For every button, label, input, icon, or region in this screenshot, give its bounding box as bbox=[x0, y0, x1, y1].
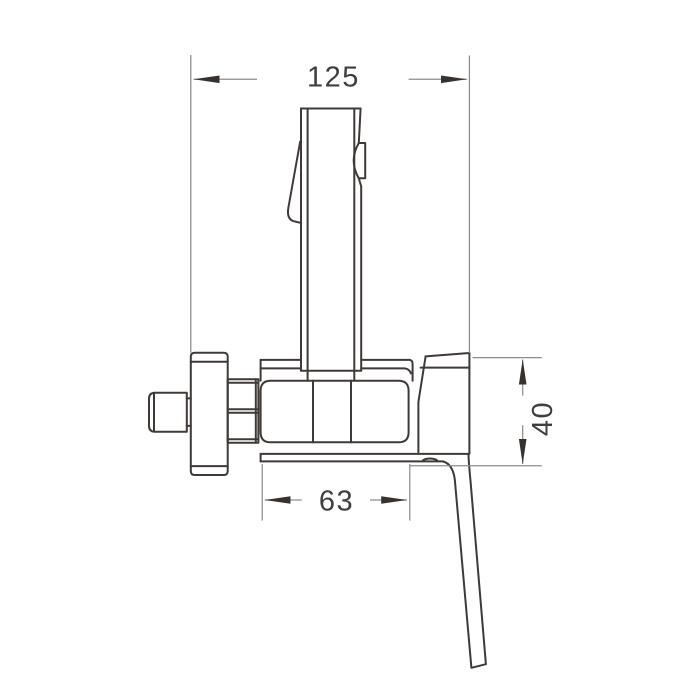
valve-body bbox=[261, 360, 469, 462]
wand-outer-right-upper-edge bbox=[359, 109, 361, 144]
arrowhead-125-left bbox=[194, 76, 220, 84]
dimension-label-125: 125 bbox=[307, 62, 360, 94]
handle-lever bbox=[443, 454, 486, 668]
dimension-label-40: 40 bbox=[527, 401, 559, 436]
spray-button bbox=[359, 143, 365, 178]
trigger-flap bbox=[288, 142, 301, 224]
cartridge-housing bbox=[261, 381, 409, 443]
handle-base-left-edge bbox=[418, 356, 425, 454]
arrowhead-40-up bbox=[519, 359, 527, 384]
handle-base bbox=[418, 353, 469, 461]
wall-plate bbox=[191, 353, 228, 475]
handle-base-top-edge bbox=[426, 353, 470, 356]
inlet-fitting bbox=[149, 393, 191, 432]
handle-lever-outline bbox=[443, 454, 486, 668]
arrowhead-63-left bbox=[265, 496, 291, 504]
technical-drawing: 125 40 63 bbox=[0, 0, 700, 700]
wall-plate-outline bbox=[191, 353, 228, 475]
arrowhead-40-down bbox=[519, 439, 527, 464]
hex-nut bbox=[228, 379, 259, 442]
spray-wand bbox=[288, 109, 365, 381]
wand-outer-right-lower-edge bbox=[359, 178, 361, 370]
hex-nut-outline bbox=[228, 379, 259, 442]
drawing-canvas: 125 40 63 bbox=[0, 0, 700, 700]
dimension-125 bbox=[191, 55, 470, 353]
body-rim-inner-right bbox=[361, 368, 411, 373]
arrowhead-125-right bbox=[441, 76, 467, 84]
arrowhead-63-right bbox=[381, 496, 407, 504]
dimension-label-63: 63 bbox=[319, 486, 354, 518]
body-rim-top-right bbox=[361, 360, 412, 381]
